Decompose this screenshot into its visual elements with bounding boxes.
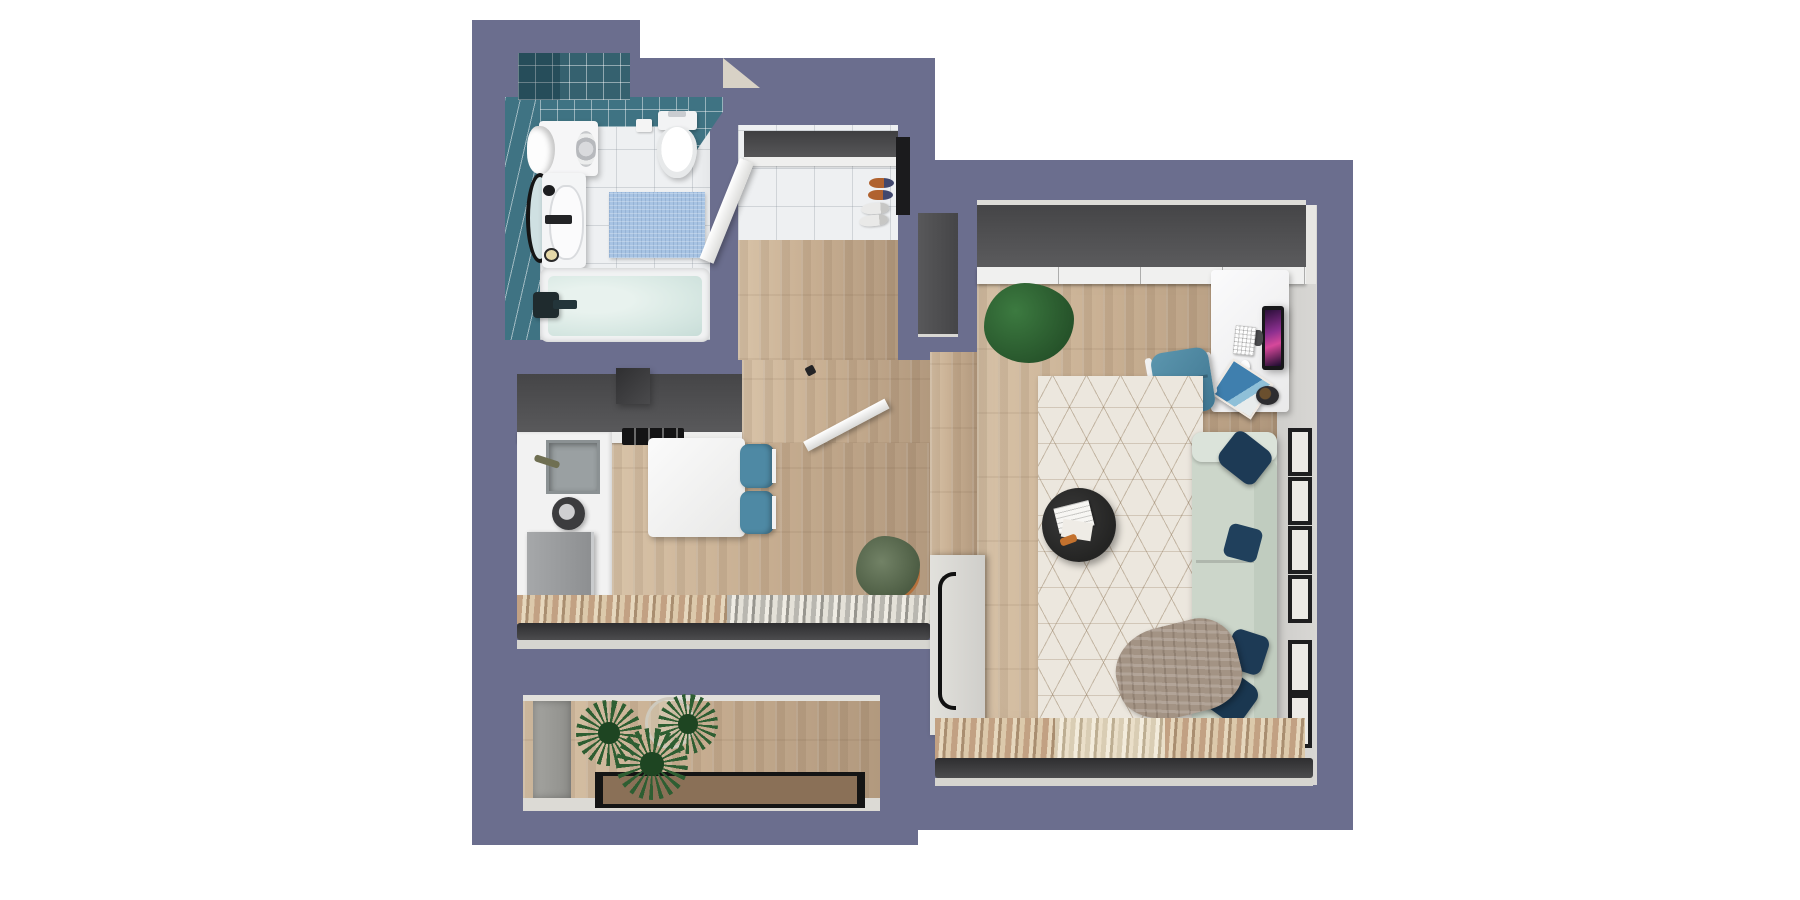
slipper-right bbox=[868, 190, 893, 200]
sofa-backrest bbox=[1254, 460, 1277, 754]
soap-dish bbox=[544, 248, 559, 262]
toilet-paper-holder bbox=[636, 119, 652, 132]
kettle bbox=[552, 497, 585, 530]
dining-chair-2-frame bbox=[772, 496, 776, 529]
living-opening-floor bbox=[930, 352, 977, 557]
living-window-band bbox=[935, 758, 1313, 778]
faucet-knob bbox=[543, 185, 555, 196]
right-window-2 bbox=[1288, 477, 1312, 525]
floorplan-render bbox=[0, 0, 1800, 900]
range-hood bbox=[616, 368, 650, 404]
top-wardrobe-side bbox=[1306, 205, 1316, 284]
toilet-flush-button bbox=[668, 111, 686, 117]
entry-side-wardrobe bbox=[918, 213, 958, 337]
living-curtains-mid bbox=[1055, 718, 1165, 760]
closet-shelf-edge bbox=[744, 157, 898, 166]
tub-faucet-spout bbox=[553, 300, 577, 309]
dining-chair-1 bbox=[740, 444, 774, 488]
kitchen-window-sill bbox=[517, 640, 930, 649]
right-window-5 bbox=[1288, 640, 1312, 694]
kitchen-window-band bbox=[517, 623, 930, 640]
dining-table bbox=[648, 438, 745, 537]
top-wardrobe bbox=[977, 205, 1306, 267]
right-window-4 bbox=[1288, 575, 1312, 623]
right-window-1 bbox=[1288, 428, 1312, 476]
kitchen-curtains-left bbox=[517, 595, 727, 624]
shower-tile-block-shade bbox=[518, 53, 560, 100]
slipper-left bbox=[869, 178, 894, 188]
balcony-plant-3 bbox=[658, 694, 718, 754]
balcony-gray-mat bbox=[533, 701, 571, 798]
sink-faucet bbox=[545, 215, 572, 224]
desk-bowl bbox=[1256, 386, 1279, 405]
living-window-sill bbox=[935, 778, 1313, 786]
dining-chair-1-frame bbox=[772, 449, 776, 483]
dining-chair-2 bbox=[740, 491, 774, 534]
kitchen-curtains-right bbox=[727, 595, 930, 624]
dark-niche bbox=[896, 137, 910, 215]
washing-machine-door bbox=[576, 131, 596, 167]
living-curtains-left bbox=[935, 718, 1055, 760]
entry-closet-wood-floor bbox=[738, 240, 898, 360]
right-window-3 bbox=[1288, 526, 1312, 574]
tall-wardrobe-handle bbox=[938, 572, 956, 710]
keyboard bbox=[1233, 325, 1257, 356]
living-curtains-right bbox=[1165, 718, 1305, 760]
monitor-screen bbox=[1265, 310, 1281, 366]
blue-bath-mat bbox=[609, 192, 705, 258]
towel bbox=[527, 126, 555, 174]
closet-shelf-band bbox=[744, 131, 898, 157]
